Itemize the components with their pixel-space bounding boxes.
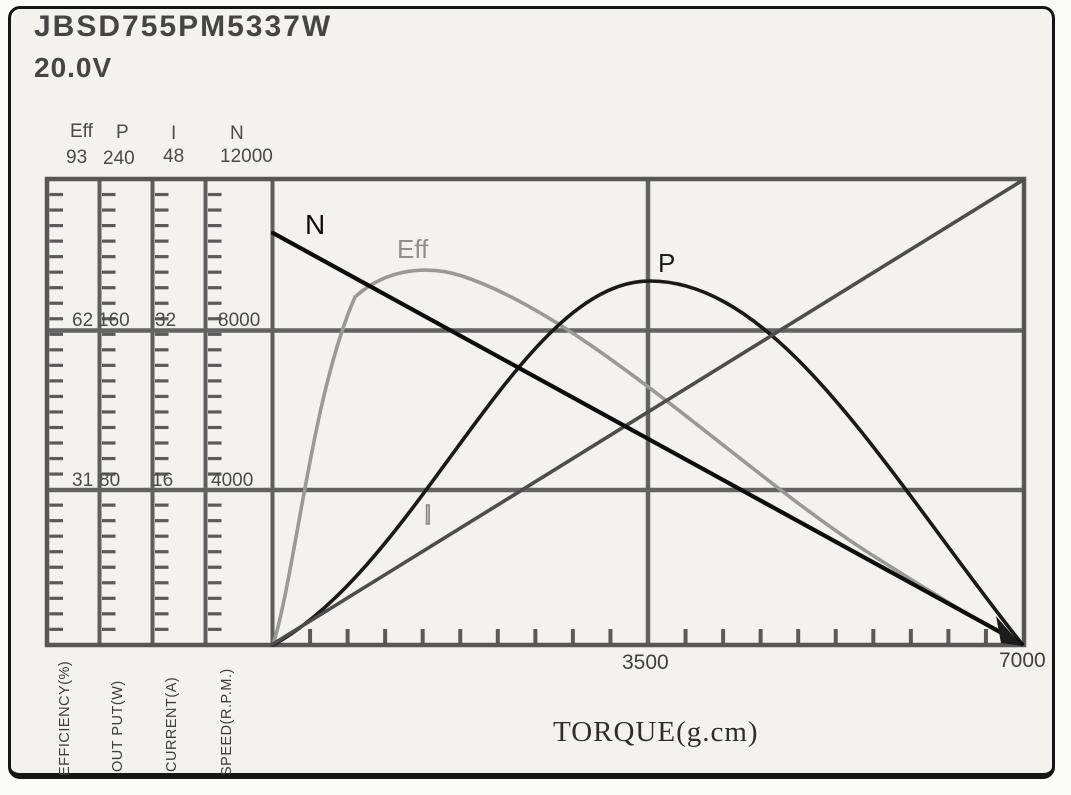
efficiency-axis-label: EFFICIENCY(%) [57, 661, 73, 776]
torque-tick-3500: 3500 [622, 651, 669, 675]
output-axis-label: OUT PUT(W) [110, 680, 126, 772]
current-low-value: 16 [152, 470, 173, 492]
torque-axis-title: TORQUE(g.cm) [553, 716, 759, 749]
axis-name-speed: N [230, 123, 244, 145]
chart-frame [8, 6, 1055, 779]
speed-mid-value: 8000 [218, 310, 260, 332]
current-max-value: 48 [163, 146, 184, 168]
torque-tick-7000: 7000 [999, 649, 1046, 673]
power-max-value: 240 [103, 148, 135, 170]
eff-low-value: 31 [72, 470, 93, 492]
current-axis-label: CURRENT(A) [164, 677, 180, 772]
speed-low-value: 4000 [211, 470, 253, 492]
eff-max-value: 93 [66, 147, 87, 169]
efficiency-curve-label: Eff [397, 234, 428, 265]
voltage-rating: 20.0V [34, 52, 112, 84]
axis-name-eff: Eff [70, 121, 93, 143]
speed-axis-label: SPEED(R.P.M.) [219, 668, 235, 776]
speed-max-value: 12000 [220, 146, 273, 168]
speed-curve-label: N [305, 209, 325, 241]
power-mid-value: 160 [98, 310, 130, 332]
power-low-value: 80 [99, 470, 120, 492]
current-curve-label: I [424, 501, 432, 531]
model-number: JBSD755PM5337W [34, 10, 332, 44]
current-mid-value: 32 [155, 310, 176, 332]
axis-name-power: P [116, 122, 129, 144]
power-curve-label: P [658, 248, 675, 279]
eff-mid-value: 62 [72, 310, 93, 332]
axis-name-current: I [171, 123, 176, 145]
motor-performance-sheet: JBSD755PM5337W 20.0V Eff P I N 9 [0, 0, 1071, 795]
